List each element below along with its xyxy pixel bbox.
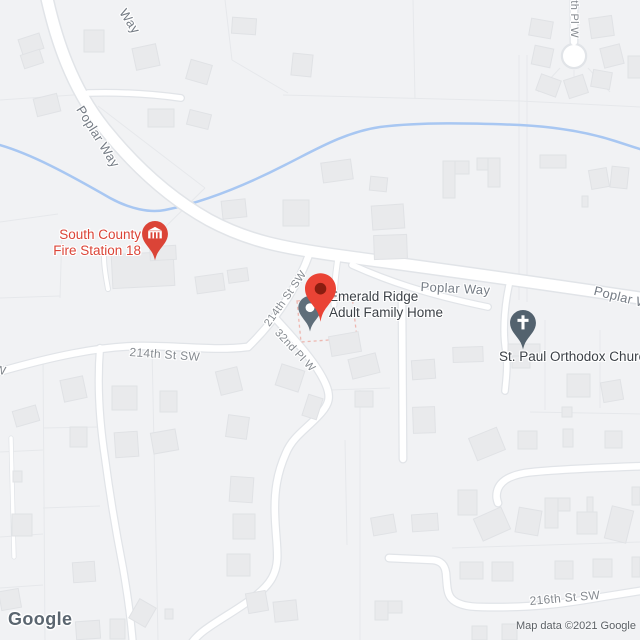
building-footprint (563, 429, 573, 447)
building-footprint (245, 590, 268, 613)
building-footprint (512, 356, 530, 368)
building-footprint (555, 561, 573, 579)
parcel-line (413, 0, 415, 99)
parcel-line (152, 348, 158, 640)
building-footprint (472, 626, 487, 640)
building-footprint (515, 507, 542, 536)
parcel-line (530, 412, 640, 414)
building-footprint (33, 93, 61, 116)
building-footprint (610, 166, 629, 189)
building-footprint (13, 471, 22, 482)
building-footprint (469, 427, 506, 460)
building-footprint (291, 53, 313, 77)
parcel-line (452, 542, 640, 548)
map-attribution: Map data ©2021 Google (516, 620, 636, 632)
parcel-line (0, 214, 58, 222)
building-footprint (492, 562, 513, 581)
building-footprint (328, 332, 361, 357)
parcel-line (43, 506, 100, 508)
building-footprint (187, 110, 212, 130)
building-footprint (632, 557, 640, 577)
building-footprint (0, 588, 21, 610)
parcel-line (345, 440, 347, 545)
building-footprint (148, 109, 174, 127)
building-footprint (531, 45, 554, 68)
building-footprint (114, 431, 139, 458)
building-footprint (226, 415, 250, 440)
building-footprint (443, 161, 455, 198)
building-footprint (12, 514, 32, 536)
building-footprint (75, 620, 100, 640)
building-footprint (371, 204, 405, 230)
building-footprint (562, 407, 572, 417)
building-footprint (70, 427, 87, 447)
building-footprint (588, 168, 609, 190)
building-footprint (72, 561, 95, 582)
building-footprint (587, 497, 593, 512)
building-footprint (589, 15, 615, 38)
building-footprint (229, 476, 254, 503)
building-footprint (165, 609, 173, 619)
parcel-line (283, 95, 520, 101)
building-footprint (231, 17, 256, 35)
building-footprint (273, 600, 298, 622)
building-footprint (458, 490, 477, 515)
building-footprint (233, 514, 255, 539)
parcel-line (60, 230, 62, 298)
building-footprint (348, 353, 380, 379)
building-footprint (186, 59, 213, 84)
building-footprint (60, 376, 87, 402)
parcel-line (225, 0, 232, 60)
place-marker-icon[interactable] (305, 273, 336, 323)
building-footprint (112, 386, 137, 410)
building-footprint (413, 407, 436, 434)
building-footprint (605, 431, 622, 448)
parcel-line (0, 450, 43, 452)
google-logo[interactable]: Google (8, 609, 72, 630)
building-footprint (132, 44, 160, 71)
building-footprint (150, 429, 178, 454)
building-footprint (221, 199, 247, 219)
parcel-line (520, 101, 640, 107)
building-footprint (632, 487, 640, 505)
map-canvas[interactable]: Way Poplar Way Poplar Way Poplar Way 214… (0, 0, 640, 640)
building-footprint (536, 74, 562, 97)
building-footprint (369, 176, 387, 192)
building-footprint (374, 234, 408, 259)
building-footprint (564, 74, 589, 98)
building-footprint (591, 69, 613, 89)
building-footprint (355, 391, 373, 407)
building-footprint (375, 601, 388, 620)
cul-de-sac (563, 45, 585, 67)
building-footprint (411, 513, 438, 532)
building-footprint (215, 367, 242, 396)
building-footprint (195, 273, 225, 294)
building-footprint (12, 405, 39, 427)
building-footprint (567, 374, 590, 397)
fire-station-poi-icon[interactable] (142, 221, 168, 261)
building-footprint (110, 619, 125, 639)
building-footprint (518, 431, 537, 449)
building-footprint (604, 506, 633, 543)
building-footprint (628, 56, 640, 78)
building-footprint (593, 559, 612, 577)
building-footprint (600, 379, 623, 402)
building-footprint (371, 514, 397, 536)
building-footprint (321, 159, 353, 183)
building-footprint (545, 498, 558, 528)
building-footprint (540, 155, 566, 168)
building-footprint (275, 364, 305, 392)
building-footprint (502, 624, 517, 640)
building-footprint (460, 562, 483, 579)
church-poi-icon[interactable] (510, 310, 536, 350)
building-footprint (529, 18, 554, 39)
building-footprint (411, 359, 435, 380)
building-footprint (488, 158, 500, 187)
building-footprint (582, 196, 588, 207)
building-footprint (227, 554, 250, 576)
building-footprint (84, 30, 104, 52)
building-footprint (577, 512, 597, 534)
building-footprint (453, 346, 484, 362)
building-footprint (600, 44, 624, 68)
building-footprint (160, 391, 177, 412)
building-footprint (283, 200, 309, 226)
building-footprint (227, 268, 249, 284)
parcel-line (330, 388, 390, 390)
parcel-line (0, 585, 43, 588)
parcel-line (43, 356, 45, 640)
parcel-line (0, 296, 60, 298)
parcel-line (232, 60, 288, 93)
building-footprint (473, 507, 510, 541)
